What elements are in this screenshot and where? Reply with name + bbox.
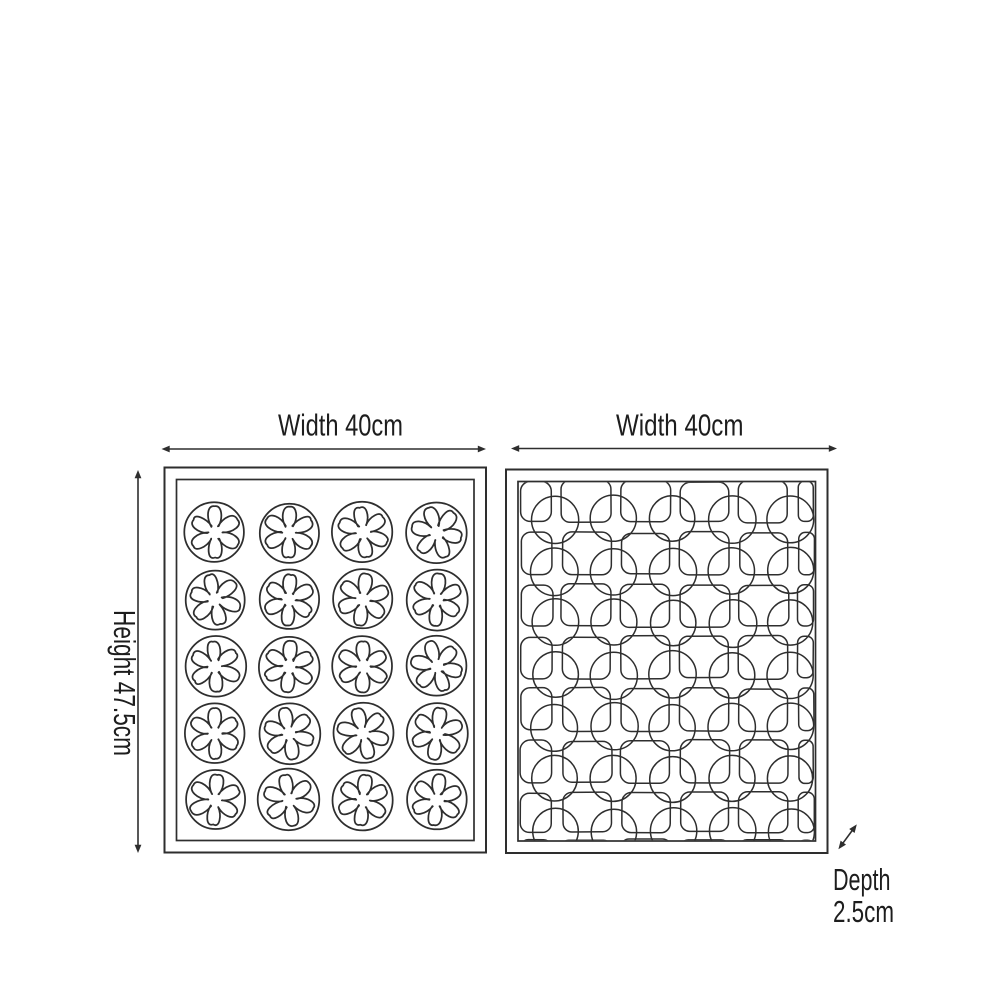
svg-text:2.5cm: 2.5cm bbox=[833, 894, 894, 929]
svg-text:Width 40cm: Width 40cm bbox=[278, 408, 403, 443]
svg-text:Width 40cm: Width 40cm bbox=[616, 408, 744, 443]
svg-text:Height 47.5cm: Height 47.5cm bbox=[107, 610, 142, 756]
svg-text:Depth: Depth bbox=[833, 862, 891, 897]
